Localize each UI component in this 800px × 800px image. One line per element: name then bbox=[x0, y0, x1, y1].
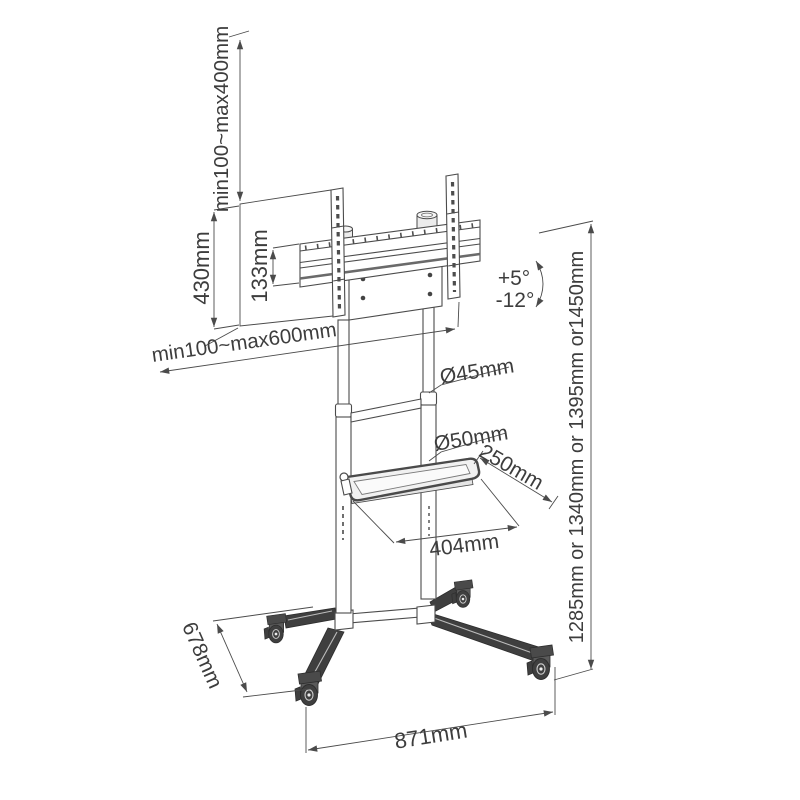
plate-hole bbox=[428, 273, 433, 278]
caster-back-right bbox=[452, 580, 473, 608]
column-left-collar bbox=[336, 404, 352, 417]
bracket-assembly bbox=[240, 174, 480, 326]
cross-strut bbox=[351, 399, 421, 422]
label-base-width: 871mm bbox=[393, 718, 469, 754]
label-bracket-height: 430mm bbox=[189, 231, 214, 304]
label-height-options: 1285mm or 1340mm or 1395mm or1450mm bbox=[566, 251, 588, 643]
tilt-arc bbox=[536, 261, 543, 307]
tv-stand-dimension-diagram: min100~max400mm 430mm 133mm min100~max60… bbox=[0, 0, 800, 800]
caster-front-right bbox=[527, 645, 554, 680]
columns bbox=[336, 306, 437, 613]
column-foot-right bbox=[417, 605, 435, 624]
label-shelf-depth: 250mm bbox=[475, 440, 547, 495]
label-upper-column-diameter: Ø45mm bbox=[438, 354, 515, 388]
plate-hole bbox=[361, 296, 366, 301]
label-vesa-height-range: min100~max400mm bbox=[210, 26, 233, 212]
plate-hole bbox=[428, 292, 433, 297]
column-left-upper bbox=[338, 320, 349, 405]
label-crossbar-height: 133mm bbox=[247, 229, 272, 302]
label-tilt-down: -12° bbox=[496, 289, 535, 312]
leg-back-left bbox=[284, 608, 336, 628]
caster-front-left bbox=[295, 671, 322, 706]
caster-back-left bbox=[264, 614, 287, 643]
diagram-canvas: min100~max400mm 430mm 133mm min100~max60… bbox=[0, 0, 800, 800]
leg-front-right bbox=[427, 612, 545, 663]
column-right-upper bbox=[423, 306, 434, 393]
base-assembly bbox=[264, 580, 553, 706]
label-shelf-width: 404mm bbox=[428, 530, 500, 561]
label-tilt-up: +5° bbox=[498, 267, 530, 290]
vesa-rail-left bbox=[331, 188, 345, 317]
shelf-assembly bbox=[340, 459, 479, 504]
vesa-rail-right bbox=[446, 174, 460, 299]
column-right-collar bbox=[421, 392, 437, 405]
